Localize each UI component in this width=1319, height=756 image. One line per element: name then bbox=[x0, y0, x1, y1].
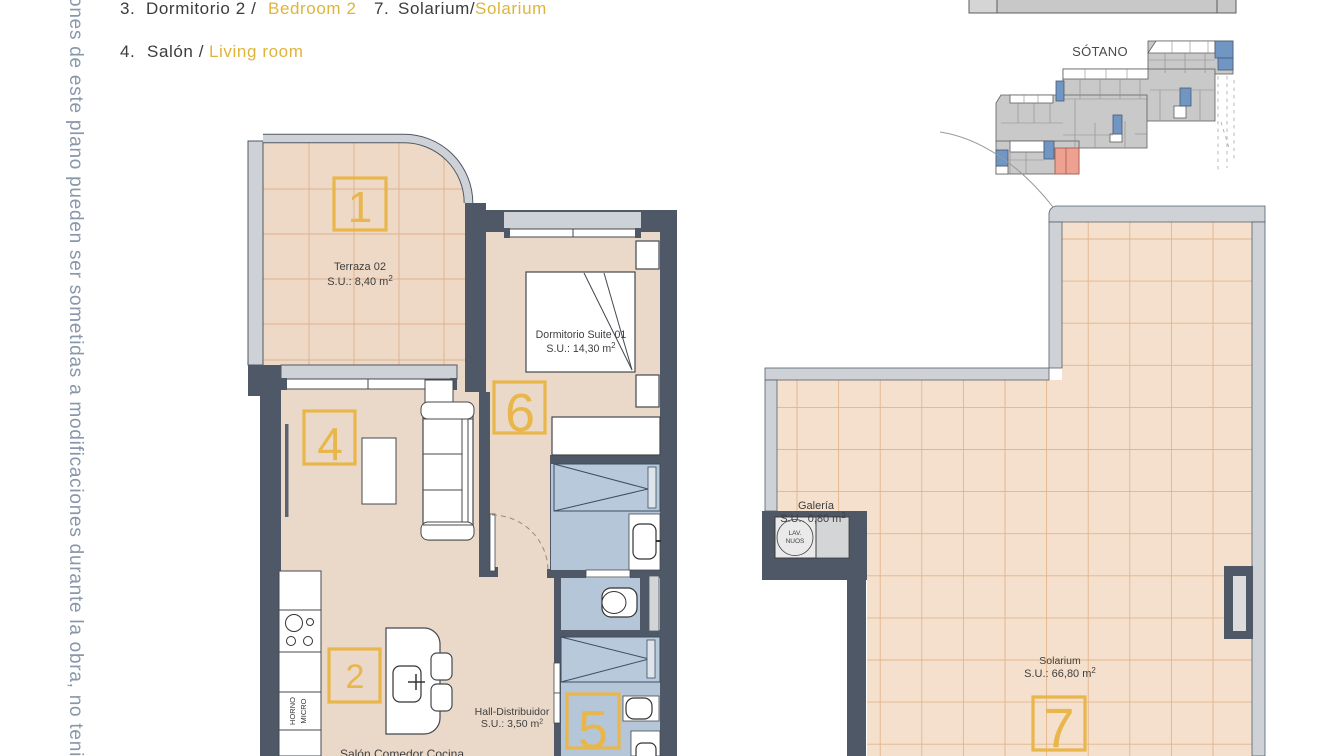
svg-text:2: 2 bbox=[346, 658, 365, 696]
svg-text:Solarium: Solarium bbox=[1039, 655, 1081, 667]
svg-text:MICRO: MICRO bbox=[299, 698, 308, 723]
svg-text:Dormitorio Suite 01: Dormitorio Suite 01 bbox=[536, 329, 627, 341]
svg-text:4.: 4. bbox=[120, 42, 135, 61]
svg-text:S.U.: 8,40 m2: S.U.: 8,40 m2 bbox=[327, 274, 393, 288]
svg-text:Solarium/: Solarium/ bbox=[398, 0, 475, 18]
svg-text:5: 5 bbox=[578, 700, 608, 756]
svg-text:SÓTANO: SÓTANO bbox=[1072, 44, 1128, 59]
svg-text:Solarium: Solarium bbox=[475, 0, 547, 18]
svg-text:HORNO: HORNO bbox=[288, 697, 297, 725]
svg-text:NUOS: NUOS bbox=[786, 538, 805, 545]
svg-text:S.U.: 3,50 m2: S.U.: 3,50 m2 bbox=[481, 718, 543, 730]
svg-text:Terraza 02: Terraza 02 bbox=[334, 261, 386, 273]
svg-text:S.U.: 14,30 m2: S.U.: 14,30 m2 bbox=[546, 341, 616, 355]
svg-text:Galería: Galería bbox=[798, 500, 835, 512]
svg-text:7.: 7. bbox=[374, 0, 389, 18]
svg-text:Salón Comedor Cocina: Salón Comedor Cocina bbox=[340, 747, 464, 756]
svg-text:LAV.: LAV. bbox=[788, 530, 801, 537]
svg-text:Hall-Distribuidor: Hall-Distribuidor bbox=[475, 706, 550, 718]
svg-text:Dormitorio 2 /: Dormitorio 2 / bbox=[146, 0, 256, 18]
svg-text:7: 7 bbox=[1043, 696, 1074, 756]
svg-text:Salón /: Salón / bbox=[147, 42, 204, 61]
svg-text:Living room: Living room bbox=[209, 42, 303, 61]
svg-text:1: 1 bbox=[348, 183, 372, 232]
svg-text:6: 6 bbox=[505, 383, 535, 443]
svg-text:Bedroom 2: Bedroom 2 bbox=[268, 0, 357, 18]
svg-text:S.U.: 0,80 m2: S.U.: 0,80 m2 bbox=[780, 511, 846, 525]
svg-text:4: 4 bbox=[317, 418, 343, 470]
svg-text:3.: 3. bbox=[120, 0, 135, 18]
svg-text:S.U.: 66,80 m2: S.U.: 66,80 m2 bbox=[1024, 666, 1096, 680]
svg-text:ones de este plano pueden ser: ones de este plano pueden ser sometidas … bbox=[65, 0, 86, 756]
